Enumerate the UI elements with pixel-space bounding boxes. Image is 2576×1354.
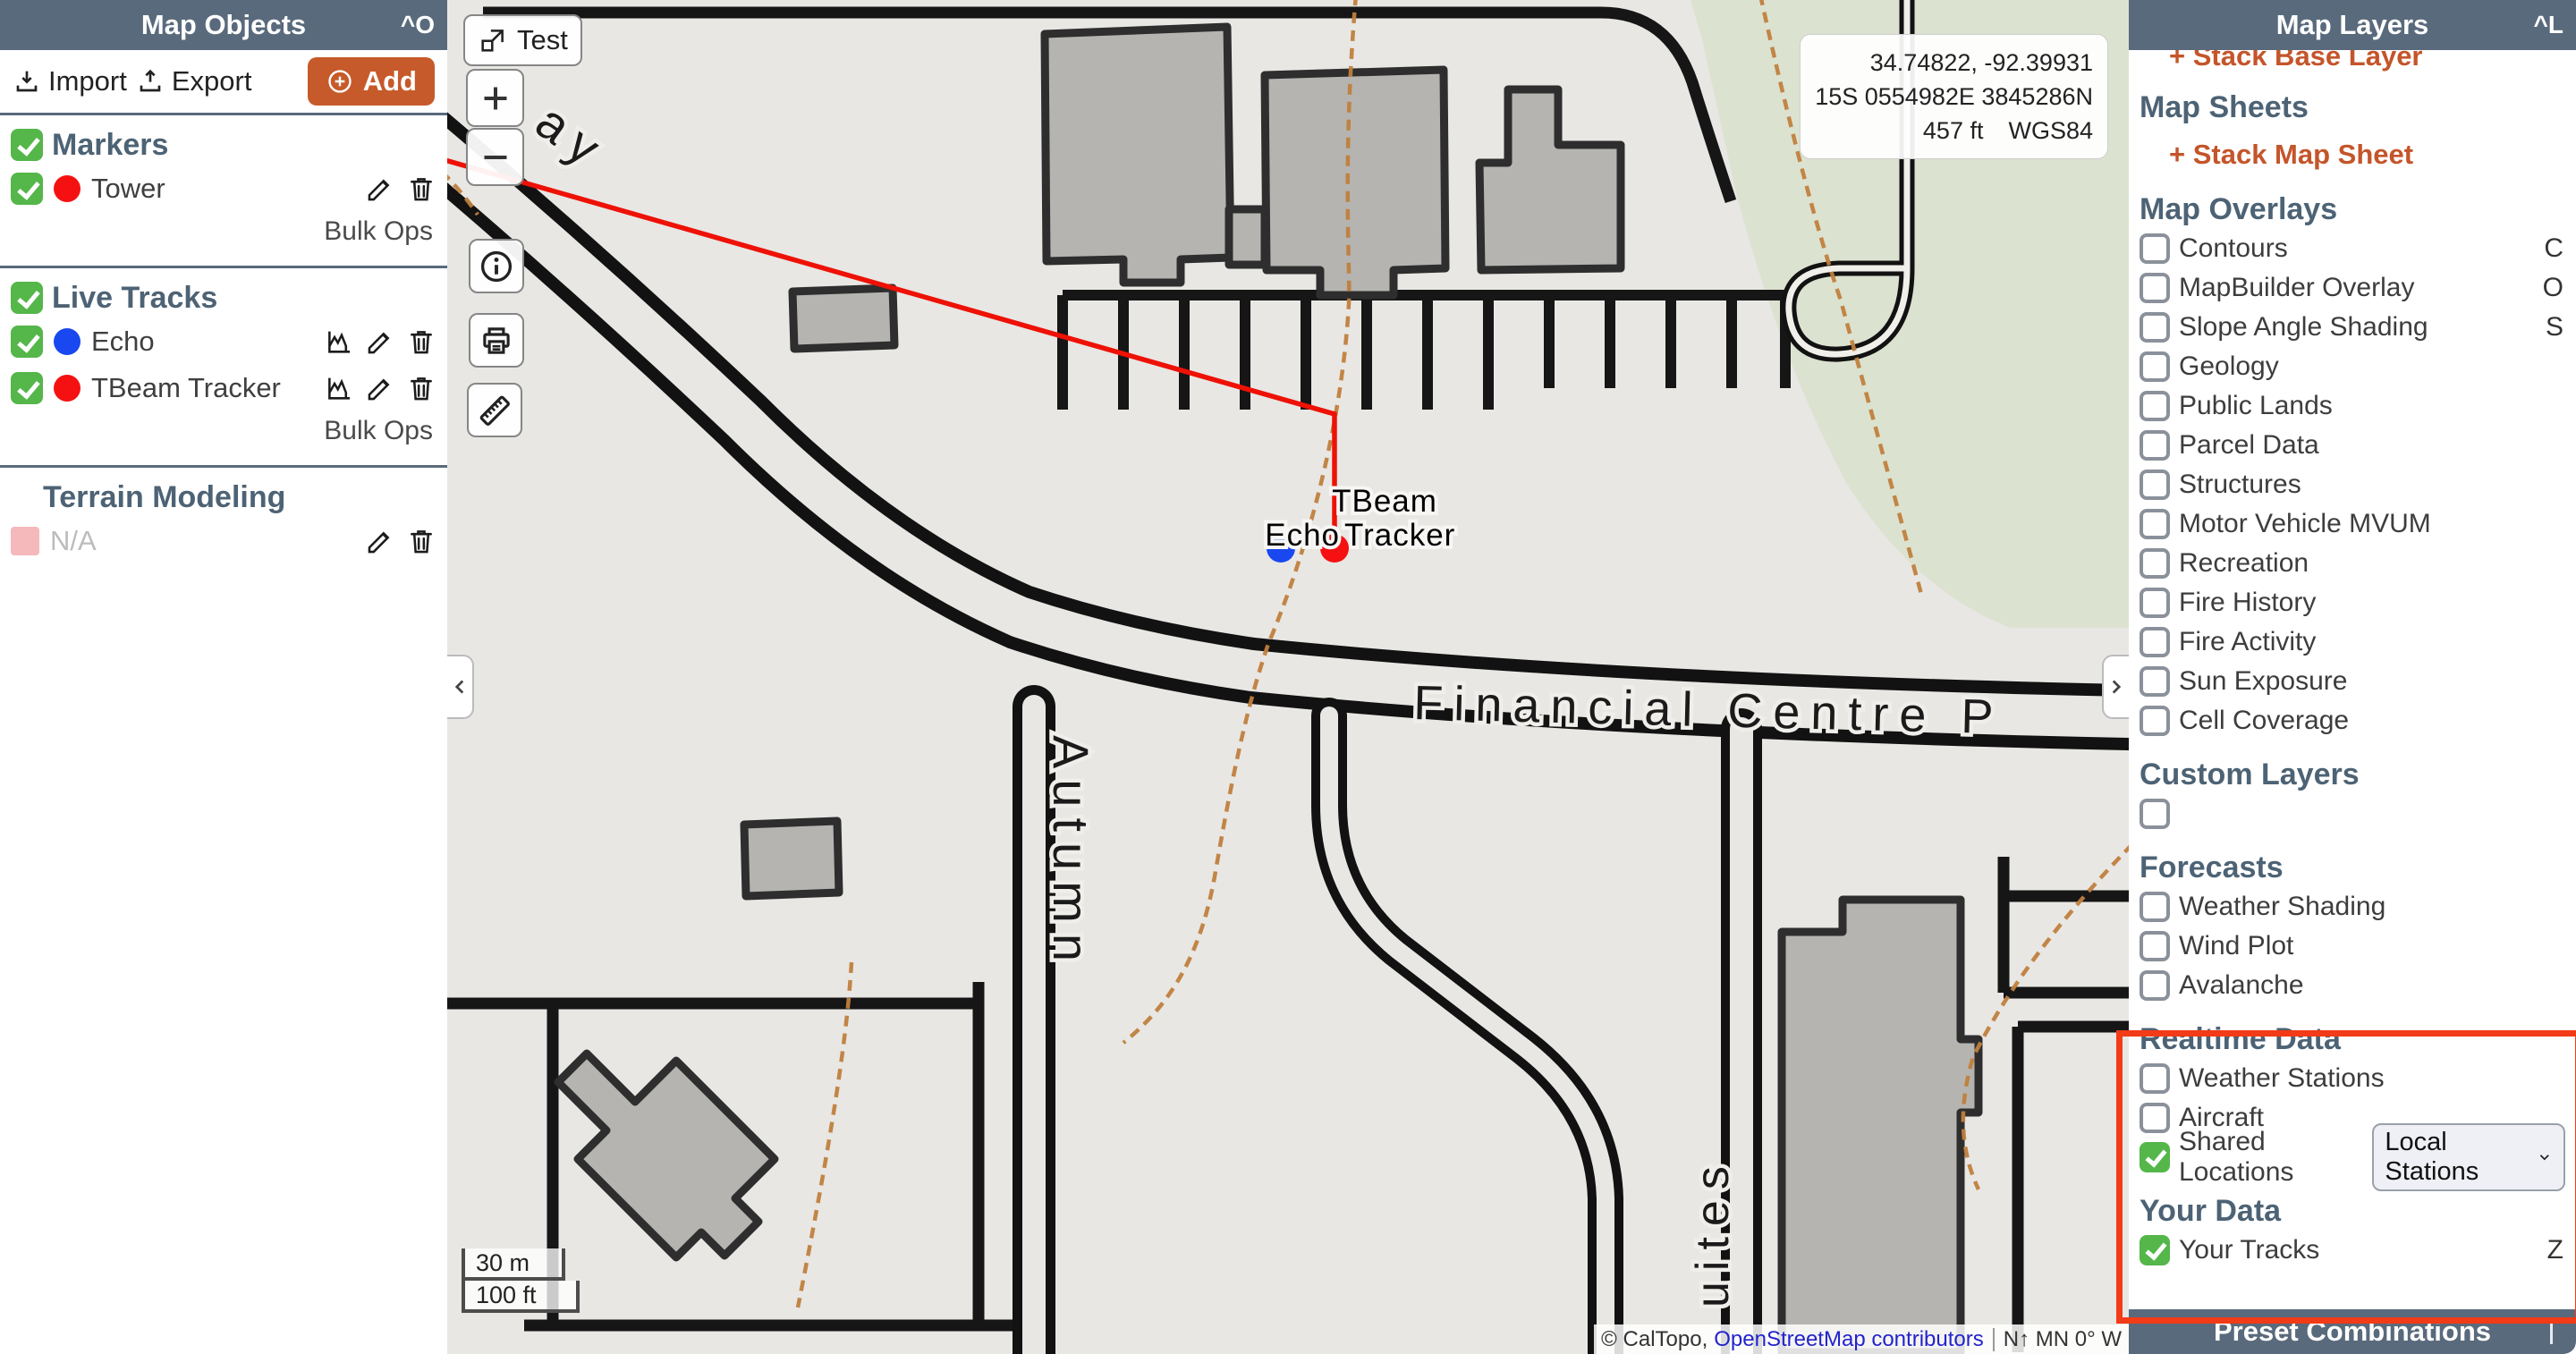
mapbuilder-overlay-checkbox[interactable]: [2140, 273, 2170, 303]
geology-checkbox[interactable]: [2140, 351, 2170, 382]
fire-history-checkbox[interactable]: [2140, 588, 2170, 618]
aircraft-checkbox[interactable]: [2140, 1103, 2170, 1133]
layer-row-your-tracks[interactable]: Your Tracks Z: [2140, 1231, 2565, 1270]
layer-row-wind-plot[interactable]: Wind Plot: [2140, 927, 2565, 966]
scale-metric: 30 m: [465, 1248, 565, 1281]
delete-trash-icon[interactable]: [406, 173, 436, 204]
tower-checkbox[interactable]: [11, 173, 43, 205]
export-button[interactable]: Export: [136, 65, 252, 97]
layer-row-mapbuilder-overlay[interactable]: MapBuilder Overlay O: [2140, 268, 2565, 308]
edit-pencil-icon[interactable]: [365, 326, 395, 357]
sun-exposure-checkbox[interactable]: [2140, 666, 2170, 697]
delete-trash-icon[interactable]: [406, 526, 436, 556]
tbeam-label-line2: Tracker: [1344, 518, 1455, 553]
map-viewport[interactable]: Financial Centre P Autumn uites ay TBeam…: [447, 0, 2129, 1354]
expand-right-panel-tab[interactable]: [2102, 655, 2129, 719]
map-attribution: © CalTopo, OpenStreetMap contributors N↑…: [1594, 1324, 2129, 1354]
map-layers-shortcut: ^L: [2534, 11, 2563, 39]
terrain-modeling-heading: Terrain Modeling: [43, 480, 285, 515]
fire-activity-checkbox[interactable]: [2140, 627, 2170, 657]
zoom-out-button[interactable]: [466, 128, 524, 186]
shortcut-key: S: [2546, 312, 2565, 343]
live-tracks-bulk-ops[interactable]: Bulk Ops: [0, 411, 447, 451]
layer-row-fire-activity[interactable]: Fire Activity: [2140, 622, 2565, 662]
layer-row-weather-stations[interactable]: Weather Stations: [2140, 1059, 2565, 1098]
marker-row-tower[interactable]: Tower: [0, 165, 447, 212]
layer-row-shared-locations[interactable]: Shared Locations Local Stations: [2140, 1138, 2565, 1177]
terrain-na-label: N/A: [50, 525, 97, 557]
forecasts-heading: Forecasts: [2140, 848, 2565, 887]
slope-angle-shading-checkbox[interactable]: [2140, 312, 2170, 343]
osm-link[interactable]: OpenStreetMap contributors: [1714, 1327, 1984, 1352]
custom-layer-checkbox[interactable]: [2140, 799, 2170, 829]
markers-bulk-ops[interactable]: Bulk Ops: [0, 212, 447, 251]
preset-combinations-button[interactable]: Preset Combinations: [2129, 1309, 2576, 1354]
layer-row-recreation[interactable]: Recreation: [2140, 544, 2565, 583]
map-objects-header[interactable]: Map Objects ^O: [0, 0, 447, 50]
layers-scroll-area[interactable]: + Stack Base Layer Map Sheets + Stack Ma…: [2129, 50, 2576, 1309]
print-button[interactable]: [469, 313, 524, 368]
tower-marker-icon: [54, 175, 80, 202]
layer-row-weather-shading[interactable]: Weather Shading: [2140, 887, 2565, 927]
utm-readout: 15S 0554982E 3845286N: [1815, 80, 2093, 114]
tbeam-label: TBeam Tracker: [91, 372, 281, 404]
map-sheets-heading: Map Sheets: [2140, 88, 2565, 127]
scale-bar: 30 m 100 ft: [462, 1248, 580, 1313]
chevron-down-icon: [2537, 1148, 2553, 1166]
public-lands-checkbox[interactable]: [2140, 391, 2170, 421]
street-label-autumn: Autumn: [1043, 735, 1099, 972]
info-button[interactable]: [469, 239, 524, 293]
layer-row-cell-coverage[interactable]: Cell Coverage: [2140, 701, 2565, 740]
custom-layer-row[interactable]: [2140, 794, 2565, 834]
echo-label: Echo: [91, 326, 155, 358]
live-tracks-heading: Live Tracks: [52, 281, 217, 316]
custom-layers-heading: Custom Layers: [2140, 755, 2565, 794]
layer-row-geology[interactable]: Geology: [2140, 347, 2565, 386]
markers-section: Markers Tower Bulk Ops: [0, 115, 447, 266]
collapse-left-panel-tab[interactable]: [447, 655, 474, 719]
coordinate-readout: 34.74822, -92.39931 15S 0554982E 3845286…: [1800, 34, 2108, 159]
recreation-checkbox[interactable]: [2140, 548, 2170, 579]
map-layers-header[interactable]: Map Layers ^L: [2129, 0, 2576, 50]
layer-row-avalanche[interactable]: Avalanche: [2140, 966, 2565, 1005]
edit-pencil-icon[interactable]: [365, 526, 395, 556]
layer-row-parcel-data[interactable]: Parcel Data: [2140, 426, 2565, 465]
map-canvas[interactable]: Financial Centre P Autumn uites ay TBeam…: [447, 0, 2129, 1354]
shortcut-key: Z: [2547, 1235, 2565, 1265]
latlon-readout: 34.74822, -92.39931: [1815, 46, 2093, 80]
markers-heading: Markers: [52, 128, 168, 163]
tbeam-checkbox[interactable]: [11, 372, 43, 404]
preset-bar-divider: [2550, 1319, 2553, 1344]
caltopo-app: Map Objects ^O Import Export Add: [0, 0, 2576, 1354]
tower-label: Tower: [91, 173, 165, 205]
weather-shading-checkbox[interactable]: [2140, 892, 2170, 922]
minus-icon: [478, 140, 513, 175]
track-row-echo[interactable]: Echo: [0, 318, 447, 365]
layer-row-fire-history[interactable]: Fire History: [2140, 583, 2565, 622]
edit-pencil-icon[interactable]: [365, 173, 395, 204]
caltopo-credit: © CalTopo,: [1601, 1327, 1707, 1352]
map-overlays-heading: Map Overlays: [2140, 190, 2565, 229]
structures-checkbox[interactable]: [2140, 470, 2170, 500]
printer-icon: [478, 322, 515, 360]
echo-checkbox[interactable]: [11, 326, 43, 358]
live-tracks-heading-row: Live Tracks: [0, 277, 447, 318]
terrain-modeling-section: Terrain Modeling N/A: [0, 468, 447, 579]
map-objects-panel: Map Objects ^O Import Export Add: [0, 0, 447, 1354]
markers-checkbox[interactable]: [11, 129, 43, 161]
map-objects-title: Map Objects: [141, 9, 306, 41]
tbeam-track-icon: [54, 375, 80, 402]
scale-imperial: 100 ft: [465, 1281, 580, 1313]
export-icon: [136, 67, 165, 96]
map-objects-shortcut: ^O: [401, 11, 435, 39]
layer-row-motor-vehicle-mvum[interactable]: Motor Vehicle MVUM: [2140, 504, 2565, 544]
measure-ruler-button[interactable]: [467, 383, 522, 437]
chevron-right-icon: [2105, 675, 2128, 698]
delete-trash-icon[interactable]: [406, 326, 436, 357]
cell-coverage-checkbox[interactable]: [2140, 706, 2170, 736]
avalanche-checkbox[interactable]: [2140, 970, 2170, 1001]
markers-heading-row: Markers: [0, 124, 447, 165]
circle-plus-icon: [326, 67, 354, 96]
wind-plot-checkbox[interactable]: [2140, 931, 2170, 961]
open-window-icon: [478, 25, 508, 55]
test-button[interactable]: Test: [463, 14, 582, 66]
street-label-suites: uites: [1687, 1155, 1739, 1307]
tbeam-label-line1: TBeam: [1332, 484, 1437, 519]
profile-chart-icon[interactable]: [324, 373, 354, 403]
elevation-readout: 457 ftWGS84: [1815, 114, 2093, 148]
parcel-data-checkbox[interactable]: [2140, 430, 2170, 461]
chevron-left-icon: [448, 675, 471, 698]
add-button[interactable]: Add: [308, 57, 435, 106]
echo-track-icon: [54, 328, 80, 355]
plus-icon: [478, 80, 513, 116]
stack-base-layer-link[interactable]: + Stack Base Layer: [2140, 50, 2565, 75]
shortcut-key: O: [2543, 273, 2565, 303]
layer-row-structures[interactable]: Structures: [2140, 465, 2565, 504]
live-tracks-checkbox[interactable]: [11, 282, 43, 314]
ruler-icon: [476, 392, 513, 429]
zoom-in-button[interactable]: [466, 69, 524, 127]
stack-map-sheet-link[interactable]: + Stack Map Sheet: [2140, 134, 2565, 175]
shared-locations-select[interactable]: Local Stations: [2372, 1123, 2565, 1191]
map-layers-panel: Map Layers ^L + Stack Base Layer Map She…: [2129, 0, 2576, 1354]
motor-vehicle-mvum-checkbox[interactable]: [2140, 509, 2170, 539]
delete-trash-icon[interactable]: [406, 373, 436, 403]
your-tracks-checkbox[interactable]: [2140, 1235, 2170, 1265]
objects-toolbar: Import Export Add: [0, 50, 447, 113]
attribution-divider: [1993, 1328, 1995, 1351]
terrain-heading-row: Terrain Modeling: [0, 477, 447, 518]
terrain-row-na[interactable]: N/A: [0, 518, 447, 564]
realtime-data-heading: Realtime Data: [2140, 1020, 2565, 1059]
weather-stations-checkbox[interactable]: [2140, 1063, 2170, 1094]
profile-chart-icon[interactable]: [324, 326, 354, 357]
compass-declination: N↑ MN 0° W: [2004, 1327, 2122, 1352]
import-button[interactable]: Import: [13, 65, 127, 97]
track-row-tbeam[interactable]: TBeam Tracker: [0, 365, 447, 411]
layer-row-contours[interactable]: Contours C: [2140, 229, 2565, 268]
layer-row-public-lands[interactable]: Public Lands: [2140, 386, 2565, 426]
terrain-swatch-icon: [11, 527, 39, 555]
shared-locations-checkbox[interactable]: [2140, 1142, 2170, 1172]
live-tracks-section: Live Tracks Echo: [0, 268, 447, 465]
your-data-heading: Your Data: [2140, 1191, 2565, 1231]
layer-row-slope-angle-shading[interactable]: Slope Angle Shading S: [2140, 308, 2565, 347]
layer-row-sun-exposure[interactable]: Sun Exposure: [2140, 662, 2565, 701]
info-icon: [478, 248, 515, 285]
import-icon: [13, 67, 41, 96]
contours-checkbox[interactable]: [2140, 233, 2170, 264]
edit-pencil-icon[interactable]: [365, 373, 395, 403]
shortcut-key: C: [2544, 233, 2565, 264]
echo-marker-label: Echo: [1265, 518, 1340, 553]
map-layers-title: Map Layers: [2276, 9, 2429, 41]
